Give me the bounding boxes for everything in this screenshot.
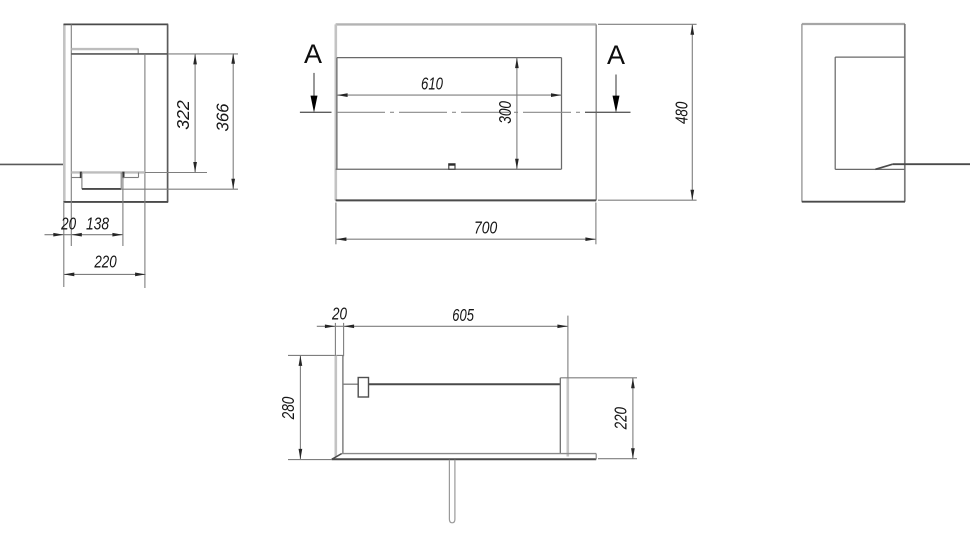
svg-text:366: 366 [213,103,233,131]
svg-text:A: A [607,40,625,70]
svg-text:280: 280 [278,396,298,420]
svg-text:220: 220 [610,407,630,430]
svg-text:480: 480 [672,102,692,125]
svg-text:322: 322 [173,100,193,130]
svg-text:20: 20 [60,213,76,233]
svg-text:610: 610 [421,73,443,93]
svg-text:20: 20 [331,304,347,324]
svg-text:220: 220 [94,251,117,271]
svg-text:138: 138 [86,213,109,233]
svg-text:A: A [304,39,322,69]
svg-text:700: 700 [474,218,497,238]
svg-text:605: 605 [452,305,474,325]
svg-text:300: 300 [495,101,515,124]
